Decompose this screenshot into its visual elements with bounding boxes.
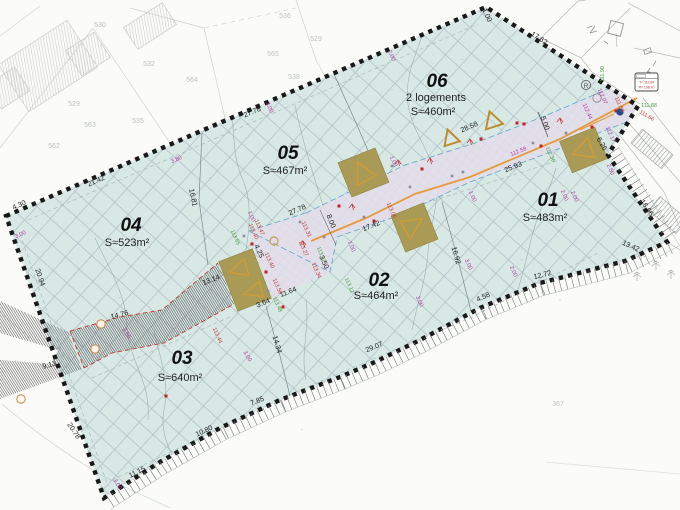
svg-text:06: 06	[426, 71, 448, 92]
svg-text:′′: ′′	[161, 416, 163, 421]
svg-text:′′: ′′	[301, 428, 303, 433]
svg-text:529: 529	[310, 36, 322, 43]
svg-text:T= 111.84: T= 111.84	[639, 81, 654, 85]
svg-text:′′: ′′	[529, 86, 531, 91]
svg-text:2 logements: 2 logements	[406, 92, 466, 104]
svg-text:03: 03	[171, 348, 193, 369]
svg-text:′′: ′′	[559, 298, 561, 303]
svg-text:′′: ′′	[249, 296, 251, 301]
svg-text:564: 564	[186, 77, 198, 84]
svg-text:′′: ′′	[369, 246, 371, 251]
svg-text:367: 367	[552, 401, 564, 408]
svg-text:′′: ′′	[201, 318, 203, 323]
svg-text:R: R	[584, 83, 589, 90]
svg-text:′′: ′′	[149, 246, 151, 251]
svg-text:′′: ′′	[351, 318, 353, 323]
svg-text:′′: ′′	[281, 348, 283, 353]
svg-text:′′: ′′	[421, 278, 423, 283]
svg-text:′′: ′′	[479, 238, 481, 243]
svg-text:565: 565	[267, 51, 279, 58]
svg-text:562: 562	[48, 143, 60, 150]
svg-text:S≈467m²: S≈467m²	[263, 165, 308, 177]
svg-text:S≈640m²: S≈640m²	[158, 372, 203, 384]
svg-text:530: 530	[94, 22, 106, 29]
svg-text:S≈460m²: S≈460m²	[411, 106, 456, 118]
svg-text:529: 529	[68, 101, 80, 108]
svg-text:′′: ′′	[359, 176, 361, 181]
svg-text:535: 535	[132, 118, 144, 125]
svg-text:111.90: 111.90	[600, 66, 606, 82]
svg-text:05: 05	[277, 143, 299, 164]
svg-text:01: 01	[537, 190, 558, 211]
svg-text:′′: ′′	[597, 218, 599, 223]
svg-text:S≈523m²: S≈523m²	[105, 237, 150, 249]
svg-text:04: 04	[120, 215, 142, 236]
svg-text:′′: ′′	[441, 328, 443, 333]
svg-text:′′: ′′	[119, 296, 121, 301]
svg-text:′′: ′′	[209, 176, 211, 181]
svg-text:532: 532	[143, 61, 155, 68]
svg-text:′′: ′′	[521, 258, 523, 263]
svg-text:′′: ′′	[429, 116, 431, 121]
svg-text:′′: ′′	[461, 58, 463, 63]
svg-text:563: 563	[84, 122, 96, 129]
svg-text:′′: ′′	[391, 88, 393, 93]
svg-text:′′: ′′	[321, 138, 323, 143]
svg-text:538: 538	[288, 74, 300, 81]
svg-text:′′: ′′	[89, 256, 91, 261]
svg-text:S≈464m²: S≈464m²	[354, 290, 399, 302]
svg-text:′′: ′′	[251, 118, 253, 123]
svg-text:111.88: 111.88	[641, 103, 657, 109]
svg-text:536: 536	[279, 13, 291, 20]
svg-text:′′: ′′	[519, 178, 521, 183]
svg-text:02: 02	[368, 270, 390, 291]
svg-text:R= 108.70: R= 108.70	[639, 86, 655, 90]
svg-text:S≈483m²: S≈483m²	[523, 212, 568, 224]
